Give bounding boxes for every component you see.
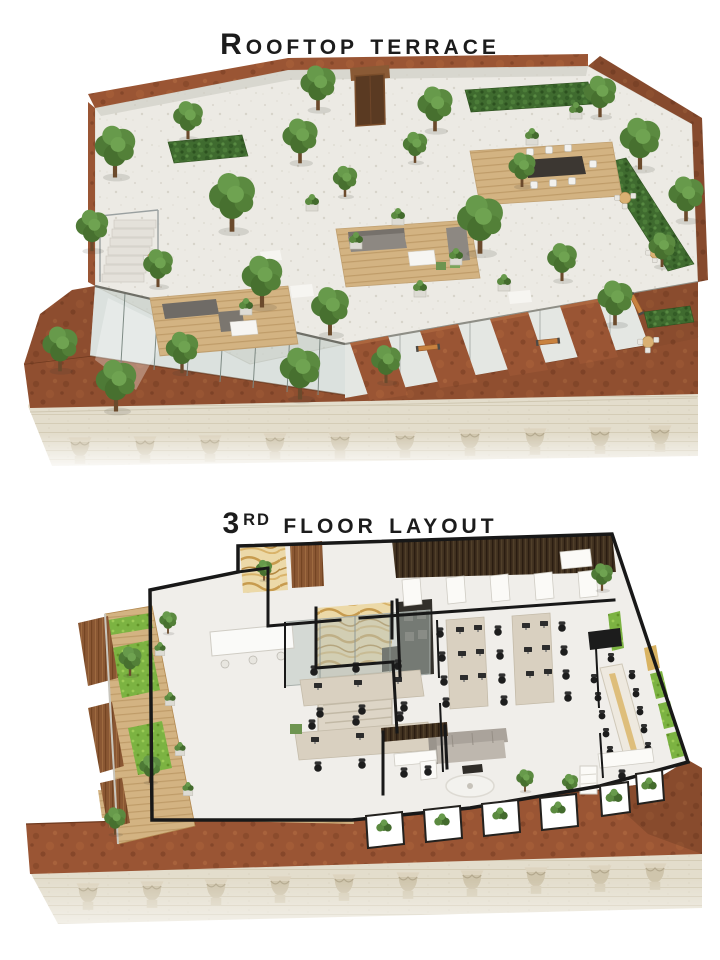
page: Rooftop terrace (0, 0, 720, 960)
roof-access-door (350, 65, 390, 126)
rooftop-render (0, 46, 720, 474)
facade-fade (0, 880, 720, 960)
floor-plan-render (0, 528, 720, 960)
facade-fade (0, 434, 720, 474)
dining-deck (470, 142, 622, 205)
floor-title-ordinal: rd (243, 511, 271, 529)
